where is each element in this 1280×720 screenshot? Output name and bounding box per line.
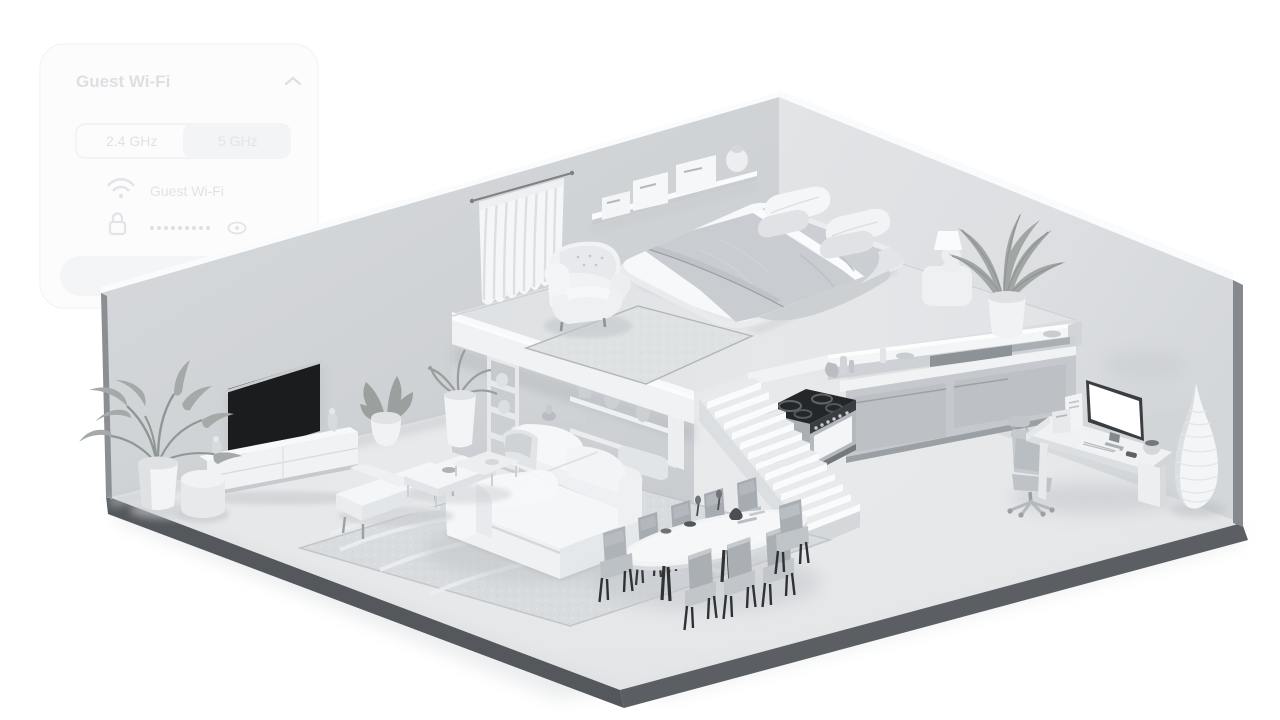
svg-text:Guest Wi-Fi: Guest Wi-Fi — [76, 72, 170, 91]
svg-text:5 GHz: 5 GHz — [218, 133, 258, 149]
svg-text:Guest Wi-Fi: Guest Wi-Fi — [150, 183, 224, 199]
svg-text:2.4 GHz: 2.4 GHz — [106, 133, 157, 149]
